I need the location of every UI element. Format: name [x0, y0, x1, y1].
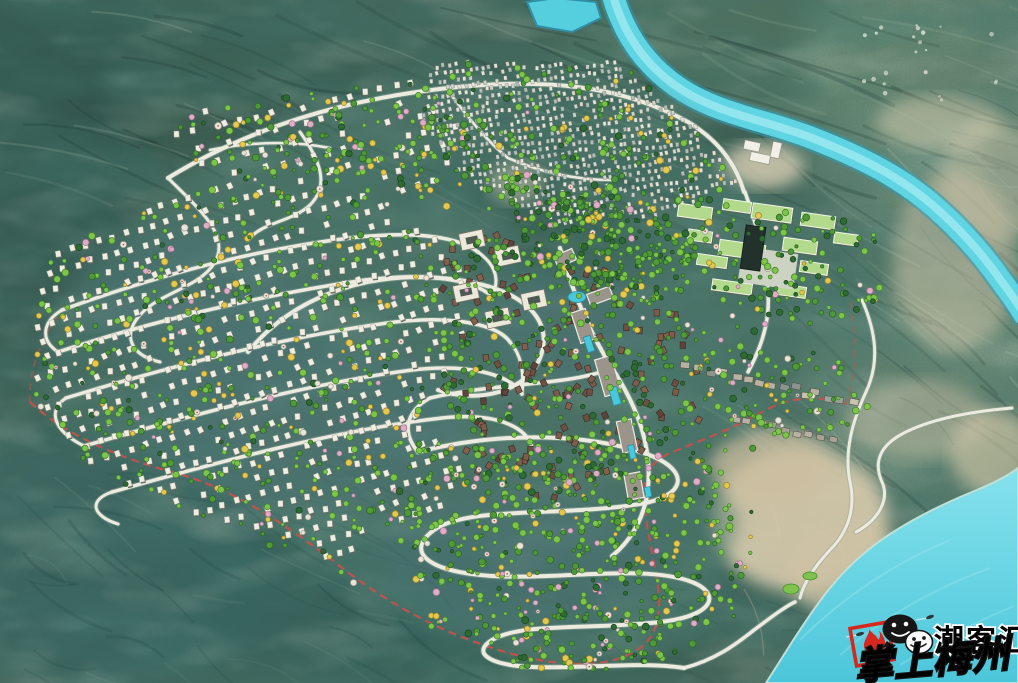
tree	[623, 581, 628, 586]
tree	[219, 472, 224, 477]
tree	[600, 250, 605, 255]
tree	[310, 92, 314, 96]
tree	[693, 478, 700, 485]
tree	[759, 226, 763, 230]
tree	[645, 459, 650, 464]
village-house	[533, 202, 536, 206]
flower-dot	[816, 410, 818, 412]
tree	[363, 368, 366, 371]
villa-building	[416, 377, 422, 384]
village-house	[490, 86, 493, 90]
tree	[450, 550, 453, 553]
tree	[243, 230, 247, 234]
tree	[733, 276, 737, 280]
tree	[246, 175, 250, 179]
tree	[177, 504, 181, 508]
tree	[618, 630, 624, 636]
tree	[93, 341, 97, 345]
tree	[599, 635, 605, 641]
tree	[464, 479, 470, 485]
tree	[506, 468, 509, 471]
tree	[723, 506, 728, 511]
flower-dot	[734, 415, 736, 417]
tree	[785, 296, 788, 299]
tree	[533, 180, 538, 185]
village-house	[530, 162, 534, 166]
tree	[516, 484, 522, 490]
tree	[448, 291, 452, 295]
tree	[514, 210, 519, 215]
tree	[715, 403, 721, 409]
village-house	[689, 133, 693, 137]
tree	[633, 371, 639, 377]
village-house	[712, 151, 716, 156]
tree	[825, 278, 831, 284]
tree	[351, 236, 354, 239]
village-house	[583, 96, 587, 101]
tree	[508, 405, 512, 409]
tree	[46, 307, 52, 313]
tree	[817, 428, 821, 432]
tree	[229, 155, 235, 161]
village-house	[537, 78, 540, 82]
villa-building	[174, 131, 179, 137]
tree	[600, 513, 606, 519]
tree	[359, 406, 365, 412]
villa-building	[102, 253, 108, 260]
villa-building	[342, 514, 348, 521]
village-house	[508, 108, 511, 112]
tree	[534, 590, 540, 596]
tree	[371, 411, 378, 418]
tree	[567, 67, 573, 73]
tree	[629, 71, 633, 75]
villa-building	[406, 246, 411, 252]
tree	[456, 322, 461, 327]
village-house	[475, 66, 479, 70]
tree	[510, 250, 515, 255]
tree	[173, 203, 179, 209]
village-house	[532, 88, 536, 92]
tree	[776, 252, 781, 257]
tree	[793, 283, 798, 288]
tree	[572, 354, 578, 360]
tree	[566, 386, 572, 392]
tree	[702, 331, 706, 335]
tree	[653, 259, 660, 266]
tree	[816, 273, 822, 279]
tree	[547, 430, 552, 435]
tree	[492, 527, 498, 533]
village-house	[653, 199, 656, 203]
tree	[351, 101, 357, 107]
tree	[509, 317, 512, 320]
tree	[271, 200, 275, 204]
tree	[851, 392, 856, 397]
tree	[479, 446, 485, 452]
tree	[208, 425, 212, 429]
tree	[720, 372, 727, 379]
tree	[524, 127, 529, 132]
tree	[568, 493, 572, 497]
village-house	[675, 142, 678, 146]
village-house	[578, 180, 582, 185]
village-house	[549, 117, 553, 122]
villa-building	[416, 426, 421, 432]
tree	[585, 266, 592, 273]
tree	[434, 331, 438, 335]
old-street-building	[744, 376, 753, 383]
villa-building	[299, 228, 304, 234]
tree	[189, 479, 193, 483]
tree	[723, 449, 727, 453]
tree	[135, 416, 140, 421]
village-house	[605, 197, 608, 201]
tree	[606, 350, 613, 357]
tree	[516, 458, 520, 462]
village-house	[448, 63, 452, 67]
tree	[613, 79, 618, 84]
village-house	[561, 76, 565, 81]
tree	[785, 356, 791, 362]
tree	[624, 611, 631, 618]
village-house	[462, 106, 466, 110]
tree	[755, 213, 761, 219]
tree	[674, 233, 679, 238]
tree	[635, 236, 638, 239]
tree	[547, 301, 551, 305]
tree	[247, 452, 251, 456]
villa-building	[235, 214, 240, 220]
tree	[306, 400, 312, 406]
tree	[585, 545, 588, 548]
villa-building	[207, 507, 213, 513]
tree	[591, 442, 597, 448]
distant-speck	[939, 26, 941, 28]
tree	[507, 580, 513, 586]
tree	[774, 287, 778, 291]
village-house	[652, 145, 655, 149]
tree	[550, 368, 554, 372]
tree	[638, 353, 641, 356]
tree	[34, 392, 39, 397]
tree	[327, 353, 333, 359]
village-house	[530, 126, 534, 131]
tree	[630, 478, 635, 483]
tree	[346, 459, 353, 466]
village-house	[446, 85, 449, 89]
villa-building	[358, 326, 364, 333]
tree	[201, 371, 207, 377]
flower-dot	[537, 611, 539, 613]
tree	[226, 487, 229, 490]
tree	[188, 347, 192, 351]
tree	[329, 513, 335, 519]
tree	[339, 156, 343, 160]
tree	[633, 493, 637, 497]
tree	[696, 574, 701, 579]
tree	[277, 266, 284, 273]
tree	[347, 357, 352, 362]
tree	[800, 276, 806, 282]
tree	[348, 429, 354, 435]
village-house	[569, 73, 572, 77]
tree	[290, 400, 297, 407]
tree	[562, 218, 566, 222]
tree	[532, 520, 538, 526]
tree	[632, 519, 638, 525]
tree	[428, 475, 432, 479]
villa-building	[282, 516, 288, 523]
tree	[311, 274, 317, 280]
tree	[289, 121, 295, 127]
tree	[521, 251, 526, 256]
tree	[533, 550, 538, 555]
tree	[656, 157, 663, 164]
tree	[598, 279, 603, 284]
village-house	[557, 176, 560, 180]
village-house	[673, 156, 677, 160]
tree	[198, 262, 202, 266]
tree	[534, 646, 540, 652]
tree	[531, 334, 534, 337]
tree	[522, 239, 525, 242]
tree	[490, 383, 494, 387]
flower-dot	[704, 230, 706, 232]
tree	[626, 146, 632, 152]
tree	[518, 153, 524, 159]
tree	[591, 271, 597, 277]
village-house	[676, 127, 679, 131]
tree	[433, 547, 437, 551]
flower-dot	[626, 621, 628, 623]
tree	[494, 265, 500, 271]
tree	[286, 210, 291, 215]
tree	[364, 350, 370, 356]
resort-building	[480, 423, 487, 431]
village-house	[642, 86, 645, 90]
tree	[242, 473, 248, 479]
villa-building	[246, 343, 252, 350]
tree	[206, 326, 212, 332]
tree	[455, 168, 459, 172]
tree	[862, 248, 868, 254]
villa-building	[298, 178, 304, 185]
tree	[736, 285, 740, 289]
tree	[528, 133, 535, 140]
tree	[594, 419, 600, 425]
village-house	[628, 172, 632, 177]
tree	[228, 385, 234, 391]
tree	[619, 173, 624, 178]
tree	[209, 496, 216, 503]
village-house	[635, 178, 639, 183]
tree	[211, 159, 218, 166]
tree	[475, 616, 479, 620]
tree	[424, 481, 428, 485]
villa-building	[456, 465, 462, 472]
tree	[500, 572, 504, 576]
tree	[366, 438, 371, 443]
tree	[734, 563, 738, 567]
village-house	[472, 143, 475, 147]
tree	[571, 226, 578, 233]
village-house	[495, 79, 499, 84]
tree	[173, 471, 179, 477]
tree	[125, 374, 132, 381]
tree	[634, 487, 637, 490]
village-house	[685, 164, 689, 169]
tree	[423, 107, 427, 111]
village-house	[570, 96, 574, 101]
tree	[489, 448, 494, 453]
tree	[207, 474, 213, 480]
tree	[649, 561, 654, 566]
flower-dot	[143, 343, 145, 345]
tree	[352, 455, 356, 459]
village-house	[586, 65, 589, 69]
village-house	[655, 138, 659, 143]
tree	[679, 187, 684, 192]
tree	[626, 498, 633, 505]
tree	[530, 254, 533, 257]
tree	[311, 537, 315, 541]
tree	[75, 308, 79, 312]
tree	[574, 435, 579, 440]
resort-building	[444, 258, 450, 265]
village-house	[515, 166, 519, 171]
tree	[818, 408, 822, 412]
tree	[711, 486, 715, 490]
tree	[491, 298, 495, 302]
tree	[480, 546, 483, 549]
tree	[261, 184, 264, 187]
tree	[414, 274, 419, 279]
tree	[300, 489, 304, 493]
tree	[439, 620, 443, 624]
flower-dot	[113, 382, 115, 384]
tree	[764, 424, 768, 428]
tree	[339, 570, 344, 575]
tree	[439, 119, 442, 122]
tree	[252, 317, 259, 324]
tree	[573, 460, 577, 464]
tree	[447, 89, 453, 95]
tree	[697, 598, 700, 601]
tree	[547, 262, 553, 268]
tree	[607, 384, 613, 390]
tree	[368, 405, 372, 409]
tree	[152, 289, 156, 293]
tree	[611, 176, 618, 183]
tree	[542, 264, 547, 269]
tree	[534, 105, 539, 110]
tree	[233, 291, 239, 297]
village-house	[700, 153, 704, 158]
tree	[285, 152, 290, 157]
tree	[502, 500, 506, 504]
resort-building	[555, 432, 562, 440]
tree	[116, 432, 122, 438]
tree	[202, 514, 206, 518]
tree	[346, 150, 353, 157]
tree	[599, 209, 603, 213]
villa-building	[323, 506, 329, 513]
tree	[344, 487, 349, 492]
village-house	[628, 165, 631, 169]
tree	[395, 147, 399, 151]
tree	[738, 572, 744, 578]
villa-building	[302, 192, 308, 199]
tree	[210, 351, 217, 358]
tree	[448, 562, 453, 567]
villa-building	[62, 366, 68, 373]
tree	[265, 422, 269, 426]
tree	[370, 98, 375, 103]
tree	[295, 139, 299, 143]
tree	[336, 283, 340, 287]
tree	[376, 120, 380, 124]
tree	[130, 384, 135, 389]
tree	[342, 101, 347, 106]
tree	[456, 532, 459, 535]
tree	[529, 215, 536, 222]
distant-speck	[871, 77, 876, 82]
village-house	[510, 122, 514, 127]
tree	[703, 237, 708, 242]
tree	[419, 195, 424, 200]
tree	[452, 350, 459, 357]
tree	[686, 257, 692, 263]
tree	[410, 453, 415, 458]
tree	[819, 311, 824, 316]
tree	[529, 530, 533, 534]
tree	[261, 532, 265, 536]
villa-building	[301, 244, 307, 251]
tree	[840, 218, 847, 225]
village-house	[436, 66, 439, 70]
tree	[831, 217, 835, 221]
tree	[417, 155, 422, 160]
tree	[549, 450, 553, 454]
tree	[277, 424, 280, 427]
tree	[772, 291, 778, 297]
tree	[275, 289, 279, 293]
tree	[252, 154, 259, 161]
villa-building	[432, 236, 438, 243]
tree	[101, 283, 106, 288]
tree	[296, 159, 300, 163]
tree	[837, 396, 840, 399]
tree	[476, 154, 480, 158]
tree	[732, 614, 735, 617]
tree	[501, 244, 507, 250]
tree	[416, 506, 422, 512]
tree	[545, 336, 550, 341]
tree	[703, 159, 708, 164]
tree	[545, 212, 552, 219]
tree	[671, 598, 676, 603]
tree	[410, 526, 414, 530]
tree	[611, 295, 617, 301]
tree	[281, 523, 284, 526]
tree	[266, 478, 272, 484]
tree	[438, 133, 443, 138]
tree	[640, 376, 645, 381]
tree	[642, 272, 645, 275]
tree	[529, 632, 534, 637]
village-house	[526, 150, 530, 155]
